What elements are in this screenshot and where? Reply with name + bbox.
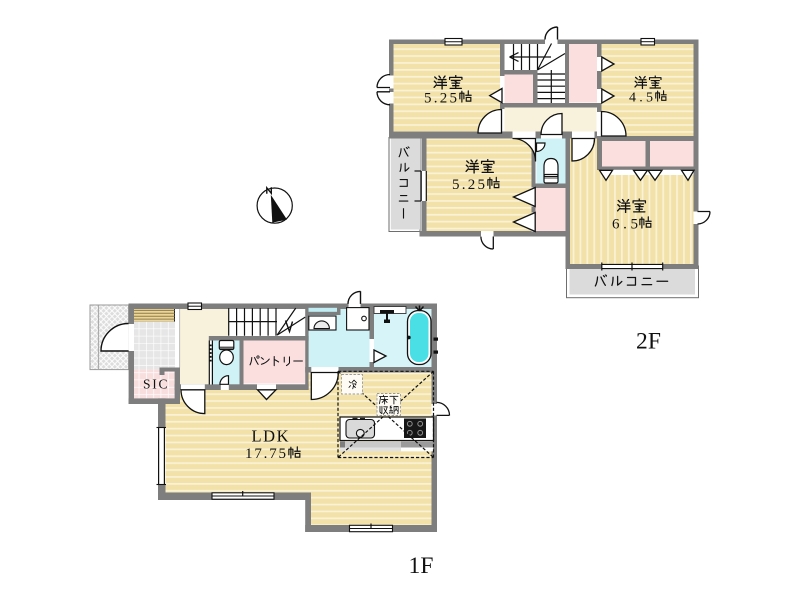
svg-text:4.5: 4.5 xyxy=(629,91,653,106)
svg-text:5.25: 5.25 xyxy=(452,177,485,193)
svg-text:17.75: 17.75 xyxy=(245,446,286,462)
svg-text:SIC: SIC xyxy=(143,377,168,392)
svg-text:LDK: LDK xyxy=(252,427,293,446)
svg-text:6.5: 6.5 xyxy=(612,217,638,233)
svg-text:5.25: 5.25 xyxy=(424,91,457,107)
svg-text:2F: 2F xyxy=(636,329,661,355)
svg-text:1F: 1F xyxy=(409,553,434,579)
